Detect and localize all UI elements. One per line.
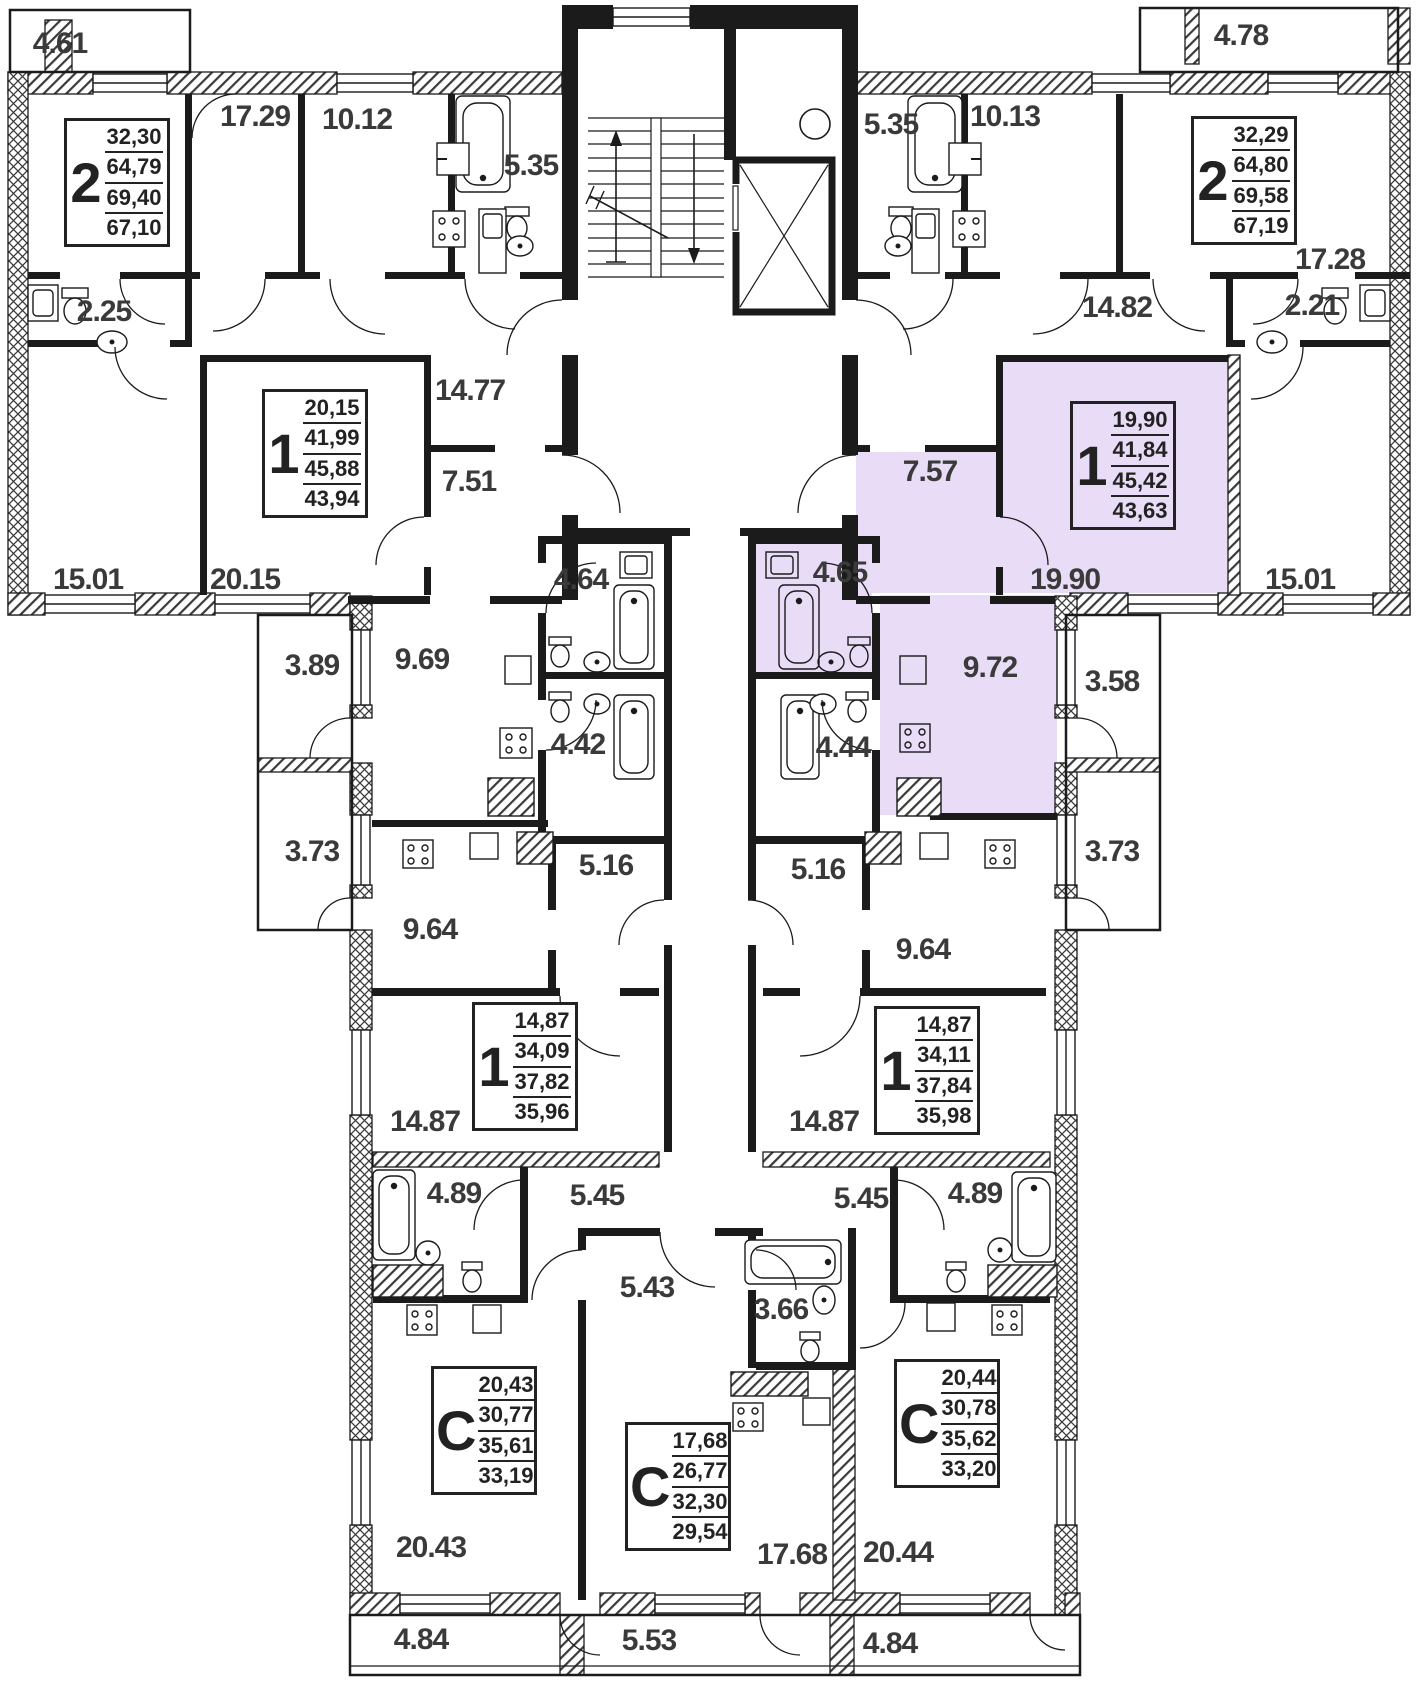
- kitchen-sink-icon: [927, 1303, 955, 1331]
- toilet-icon: [549, 637, 571, 667]
- room-area-label: 17.29: [220, 102, 290, 132]
- toilet-icon: [800, 1332, 820, 1362]
- area-value: 34,09: [513, 1037, 571, 1068]
- kitchen-sink-icon: [803, 1398, 830, 1425]
- area-value: 30,77: [478, 1401, 533, 1432]
- area-value: 33,20: [941, 1455, 996, 1484]
- room-area-label: 2.25: [77, 297, 131, 327]
- bathtub-icon: [745, 1240, 841, 1284]
- room-area-label: 4.78: [1214, 21, 1268, 51]
- area-value: 35,61: [478, 1432, 533, 1463]
- apartment-type: C: [630, 1459, 670, 1515]
- apartment-card[interactable]: 1 20,15 41,99 45,88 43,94: [262, 389, 368, 518]
- sink-icon: [1257, 331, 1287, 353]
- kitchen-sink-icon: [470, 833, 498, 859]
- door-arc: [860, 1303, 905, 1348]
- room-area-label: 5.45: [834, 1184, 888, 1214]
- door-arc: [1077, 898, 1109, 930]
- room-area-label: 19.90: [1030, 565, 1100, 595]
- apartment-card[interactable]: 2 32,30 64,79 69,40 67,10: [64, 118, 170, 247]
- room-area-label: 4.42: [551, 730, 605, 760]
- apartment-card[interactable]: 1 14,87 34,09 37,82 35,96: [472, 1002, 578, 1131]
- room-area-label: 14.87: [390, 1107, 460, 1137]
- apartment-type: C: [899, 1396, 939, 1452]
- door-arc: [310, 718, 350, 758]
- sink-icon: [507, 236, 533, 256]
- door-arc: [1153, 279, 1205, 331]
- stove-icon: [500, 728, 532, 758]
- room-area-label: 20.44: [863, 1538, 933, 1568]
- door-arc: [330, 279, 385, 334]
- room-area-label: 5.43: [620, 1273, 674, 1303]
- area-value: 35,96: [513, 1098, 571, 1127]
- area-value: 69,40: [105, 184, 163, 215]
- area-value: 64,79: [105, 153, 163, 184]
- apartment-card[interactable]: 2 32,29 64,80 69,58 67,19: [1191, 116, 1297, 245]
- area-value: 29,54: [672, 1518, 727, 1547]
- sink-icon: [97, 331, 127, 353]
- room-area-label: 5.35: [864, 110, 918, 140]
- door-arc: [376, 517, 424, 565]
- room-area-label: 17.68: [757, 1540, 827, 1570]
- door-arc: [748, 900, 793, 945]
- room-area-label: 5.35: [504, 151, 558, 181]
- sink-icon: [988, 1238, 1012, 1262]
- area-value: 43,63: [1111, 497, 1169, 526]
- area-value: 32,29: [1232, 121, 1290, 152]
- stove-icon: [733, 1403, 763, 1431]
- room-area-label: 14.82: [1082, 293, 1152, 323]
- apartment-type: 2: [1196, 153, 1230, 209]
- room-area-label: 20.15: [210, 565, 280, 595]
- room-area-label: 5.53: [622, 1626, 676, 1656]
- area-value: 67,10: [105, 214, 163, 243]
- apartment-type: 1: [879, 1043, 913, 1099]
- area-value: 43,94: [303, 485, 361, 514]
- room-area-label: 3.66: [754, 1295, 808, 1325]
- room-area-label: 10.13: [970, 102, 1040, 132]
- door-arc: [903, 279, 953, 329]
- washer-icon: [1360, 285, 1390, 321]
- toilet-icon: [549, 692, 571, 722]
- door-arc: [562, 455, 620, 513]
- fixtures: [28, 96, 1390, 1431]
- room-area-label: 4.61: [33, 29, 87, 59]
- sink-icon: [584, 652, 610, 672]
- area-value: 20,44: [941, 1364, 996, 1395]
- room-area-label: 15.01: [53, 565, 123, 595]
- area-value: 33,19: [478, 1462, 533, 1491]
- area-value: 64,80: [1232, 151, 1290, 182]
- door-arc: [1077, 718, 1117, 758]
- stove-icon: [992, 1305, 1022, 1335]
- area-value: 26,77: [672, 1457, 727, 1488]
- toilet-icon: [462, 1262, 482, 1292]
- sink-icon: [416, 1241, 440, 1265]
- room-area-label: 20.43: [396, 1533, 466, 1563]
- door-arc: [619, 900, 664, 945]
- kitchen-sink-icon: [505, 656, 531, 684]
- kitchen-sink-icon: [949, 143, 981, 175]
- apartment-type: 2: [69, 155, 103, 211]
- stove-icon: [433, 211, 465, 247]
- area-value: 45,88: [303, 455, 361, 486]
- room-area-label: 5.16: [791, 855, 845, 885]
- area-value: 37,84: [915, 1072, 973, 1103]
- stairs-icon: [586, 118, 724, 277]
- area-value: 32,30: [105, 123, 163, 154]
- room-area-label: 4.64: [554, 565, 608, 595]
- apartment-type: 1: [267, 426, 301, 482]
- washer-icon: [28, 285, 58, 321]
- bathtub-icon: [1012, 1172, 1056, 1262]
- kitchen-sink-icon: [473, 1305, 501, 1333]
- washer-icon: [479, 209, 506, 273]
- toilet-icon: [889, 207, 913, 240]
- toilet-icon: [846, 692, 868, 722]
- apartment-card[interactable]: C 20,44 30,78 35,62 33,20: [894, 1359, 1000, 1488]
- area-value: 32,30: [672, 1488, 727, 1519]
- area-value: 17,68: [672, 1427, 727, 1458]
- door-arc: [1033, 279, 1088, 334]
- room-area-label: 17.28: [1295, 245, 1365, 275]
- room-area-label: 9.69: [395, 645, 449, 675]
- kitchen-sink-icon: [437, 143, 469, 175]
- sink-icon: [584, 694, 610, 714]
- area-value: 14,87: [915, 1011, 973, 1042]
- windows: [45, 8, 1373, 1613]
- area-value: 37,82: [513, 1068, 571, 1099]
- washer-icon: [620, 552, 652, 578]
- room-area-label: 4.84: [863, 1629, 917, 1659]
- room-area-label: 3.73: [285, 837, 339, 867]
- apartment-card[interactable]: C 20,43 30,77 35,61 33,19: [431, 1366, 537, 1495]
- area-value: 34,11: [915, 1041, 973, 1072]
- room-area-label: 9.72: [963, 653, 1017, 683]
- stove-icon: [407, 1305, 437, 1335]
- door-arc: [894, 1180, 944, 1230]
- area-value: 30,78: [941, 1394, 996, 1425]
- apartment-type: 1: [1075, 438, 1109, 494]
- door-arc: [115, 347, 167, 399]
- stove-icon: [985, 840, 1015, 868]
- room-area-label: 4.44: [816, 733, 870, 763]
- elevator-icon: [731, 109, 832, 312]
- area-value: 35,62: [941, 1425, 996, 1456]
- room-area-label: 4.84: [394, 1625, 448, 1655]
- bathtub-icon: [614, 585, 654, 669]
- floor-plan: 4.61 17.29 10.12 5.35 5.35 10.13 4.78 2.…: [0, 0, 1418, 1684]
- apartment-type: C: [436, 1403, 476, 1459]
- stove-icon: [953, 211, 985, 247]
- room-area-label: 5.45: [570, 1181, 624, 1211]
- room-area-label: 10.12: [322, 105, 392, 135]
- area-value: 41,84: [1111, 436, 1169, 467]
- door-arc: [213, 279, 265, 331]
- room-area-label: 3.58: [1085, 667, 1139, 697]
- area-value: 45,42: [1111, 467, 1169, 498]
- apartment-card[interactable]: 1 14,87 34,11 37,84 35,98: [874, 1006, 980, 1135]
- door-arc: [507, 300, 562, 355]
- room-area-label: 4.65: [813, 558, 867, 588]
- door-arcs: [115, 94, 1303, 1655]
- room-area-label: 14.77: [435, 376, 505, 406]
- room-area-label: 4.89: [427, 1179, 481, 1209]
- room-area-label: 2.21: [1285, 291, 1339, 321]
- room-area-label: 7.51: [442, 467, 496, 497]
- room-area-label: 3.89: [285, 651, 339, 681]
- door-arc: [532, 1250, 582, 1300]
- toilet-icon: [505, 207, 529, 240]
- area-value: 20,43: [478, 1371, 533, 1402]
- area-value: 41,99: [303, 424, 361, 455]
- room-area-label: 14.87: [789, 1107, 859, 1137]
- apartment-card[interactable]: C 17,68 26,77 32,30 29,54: [625, 1422, 731, 1551]
- apartment-card-highlighted[interactable]: 1 19,90 41,84 45,42 43,63: [1070, 401, 1176, 530]
- room-area-label: 15.01: [1265, 565, 1335, 595]
- washer-icon: [912, 209, 939, 273]
- door-arc: [1030, 1615, 1065, 1650]
- door-arc: [318, 898, 350, 930]
- kitchen-sink-icon: [920, 833, 948, 859]
- stove-icon: [403, 840, 433, 868]
- toilet-icon: [946, 1262, 966, 1292]
- sink-icon: [885, 236, 911, 256]
- apartment-type: 1: [477, 1039, 511, 1095]
- area-value: 14,87: [513, 1007, 571, 1038]
- area-value: 67,19: [1232, 212, 1290, 241]
- door-arc: [798, 455, 856, 513]
- door-arc: [760, 1615, 800, 1655]
- door-arc: [800, 996, 860, 1056]
- room-area-label: 5.16: [579, 851, 633, 881]
- room-area-label: 3.73: [1085, 837, 1139, 867]
- room-area-label: 4.89: [948, 1179, 1002, 1209]
- room-area-label: 7.57: [903, 457, 957, 487]
- door-arc: [1251, 347, 1303, 399]
- area-value: 20,15: [303, 394, 361, 425]
- bathtub-icon: [614, 695, 654, 779]
- sink-icon: [813, 1286, 835, 1314]
- door-arc: [465, 279, 515, 329]
- door-arc: [474, 1180, 524, 1230]
- lobby-column-icon: [800, 109, 830, 139]
- door-arc: [856, 300, 911, 355]
- room-area-label: 9.64: [403, 915, 457, 945]
- bathtub-icon: [373, 1170, 415, 1260]
- area-value: 19,90: [1111, 406, 1169, 437]
- room-area-label: 9.64: [896, 935, 950, 965]
- area-value: 69,58: [1232, 182, 1290, 213]
- area-value: 35,98: [915, 1102, 973, 1131]
